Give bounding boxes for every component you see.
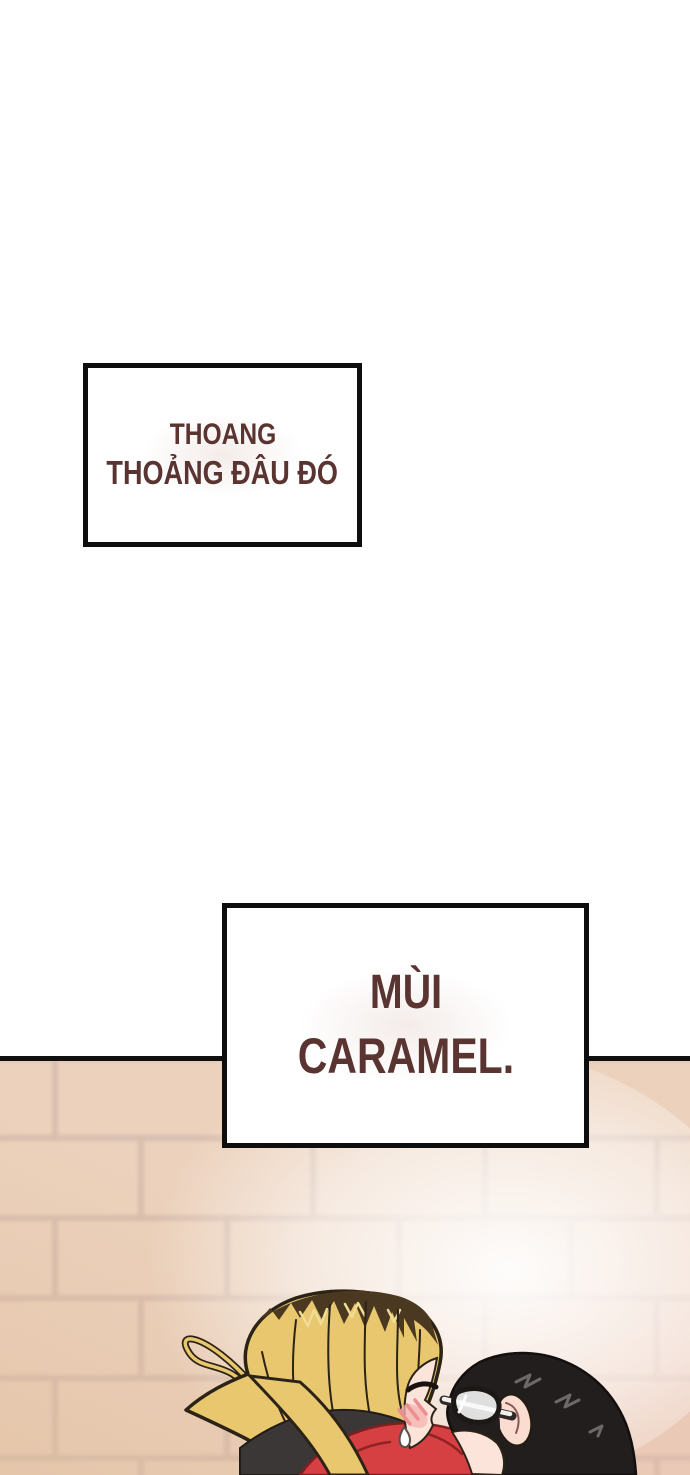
caption-text-line: MÙI [369,964,441,1023]
comic-page: THOANG THOẢNG ĐÂU ĐÓ MÙI CARAMEL. [0,0,690,1475]
speech-box-2: MÙI CARAMEL. [222,903,589,1148]
caption-text-line: THOANG [169,417,276,454]
speech-box-1: THOANG THOẢNG ĐÂU ĐÓ [83,363,362,547]
caption-text-line: CARAMEL. [297,1026,513,1087]
caption-text-line: THOẢNG ĐÂU ĐÓ [107,453,339,493]
